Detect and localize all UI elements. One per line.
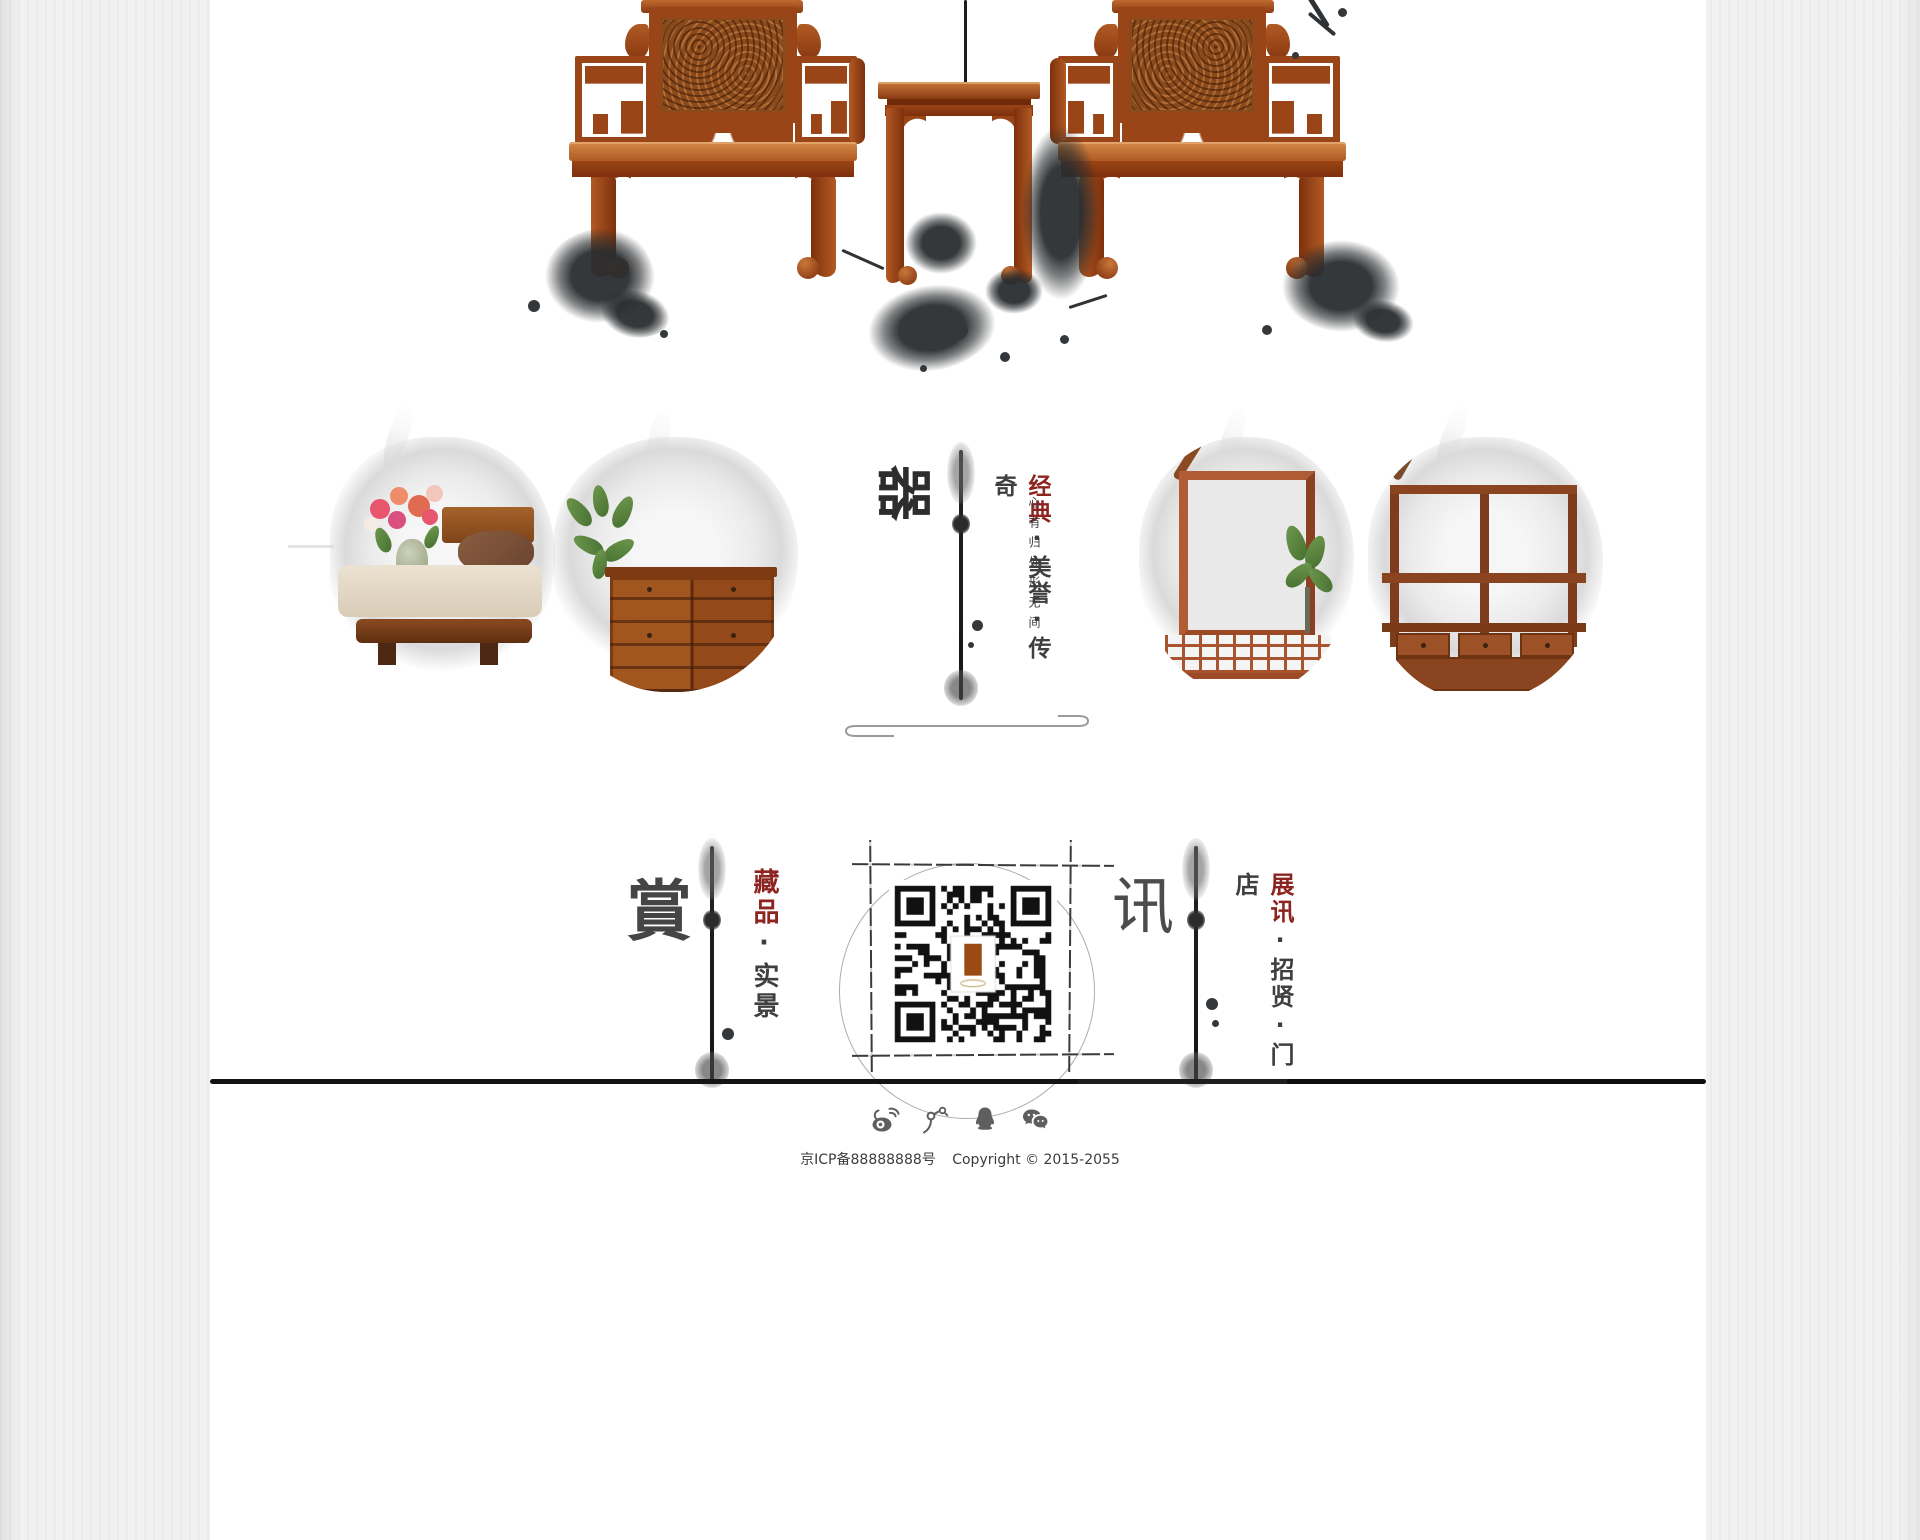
drawer-knob — [1483, 643, 1488, 648]
ink-dot — [1292, 52, 1299, 59]
table-top — [878, 82, 1040, 99]
bed-surface — [338, 565, 542, 617]
shang-slogan: 藏品·实景 — [746, 868, 783, 1028]
icp-number: 京ICP备88888888号 — [800, 1152, 936, 1168]
leaf — [372, 525, 395, 554]
ink-dot — [1338, 8, 1347, 17]
ink-knot — [703, 910, 721, 930]
chair-arm-panel — [795, 56, 857, 144]
qr-frame-line — [1068, 840, 1072, 1072]
ink-splat — [905, 212, 977, 274]
ink-brush-line — [1194, 846, 1198, 1082]
copyright-line: 京ICP备88888888号 Copyright © 2015-2055 — [0, 1149, 1920, 1169]
gallery-item-bedroom[interactable] — [330, 437, 555, 692]
divider-line — [838, 708, 1096, 742]
ink-brush-line — [710, 846, 714, 1082]
gallery-item-shelf[interactable] — [1368, 437, 1603, 700]
bed-leg — [480, 643, 498, 665]
shelf-rail — [1382, 573, 1586, 583]
ink-dot — [1206, 998, 1218, 1010]
wechat-qr-canvas — [889, 880, 1057, 1048]
ink-brush-line — [959, 450, 963, 700]
social-links — [0, 1104, 1920, 1136]
flower — [388, 511, 406, 529]
ink-splat — [863, 277, 1002, 380]
qr-frame-line — [852, 863, 1114, 867]
tencent-weibo-icon[interactable] — [919, 1104, 951, 1136]
ink-dot — [660, 330, 668, 338]
ink-dot — [1060, 335, 1069, 344]
chair-arm-panel — [575, 56, 653, 144]
shelf-base-cabinet — [1396, 657, 1574, 691]
brand-slogan: 经典·美誉·传奇 — [986, 474, 1054, 674]
chair-scroll-ornament — [625, 24, 649, 58]
plant-trunk — [1305, 587, 1310, 633]
table-apron — [885, 105, 1033, 116]
wechat-icon[interactable] — [1019, 1104, 1051, 1136]
footer-brush-line — [210, 1079, 1706, 1084]
gallery-row: 器 经典·美誉·传奇 心有归处形无间 — [0, 420, 1920, 720]
drawer-knob — [647, 587, 652, 592]
weibo-icon[interactable] — [869, 1104, 901, 1136]
ink-dot — [1262, 325, 1272, 335]
drawer-knob — [731, 633, 736, 638]
ink-dot — [1212, 1020, 1219, 1027]
ink-dot — [972, 620, 983, 631]
leaf — [562, 494, 596, 530]
hanging-string — [964, 0, 967, 86]
ink-knot — [1187, 910, 1205, 930]
slogan-primary: 展讯 — [1266, 872, 1294, 926]
flower — [370, 499, 390, 519]
chair-arm-post — [849, 58, 865, 144]
chair-seat — [569, 142, 857, 161]
chair-apron — [572, 161, 854, 177]
ink-dot — [946, 320, 968, 340]
slogan-primary: 藏品 — [749, 868, 779, 928]
hero-furniture-scene — [0, 0, 1920, 380]
qq-icon[interactable] — [969, 1104, 1001, 1136]
shang-section[interactable]: 賞 藏品·实景 — [600, 830, 800, 1085]
ink-fuzz — [698, 838, 726, 900]
gallery-item-cabinet[interactable] — [553, 437, 798, 692]
ink-fuzz — [947, 442, 975, 504]
drawer-grid — [610, 577, 774, 692]
chair-carved-panel — [1132, 20, 1252, 110]
chair-scroll-ornament — [1094, 24, 1118, 58]
shelf-counter — [1382, 623, 1586, 632]
drawer-knob — [1545, 643, 1550, 648]
ink-knot — [952, 514, 970, 534]
flower — [390, 487, 408, 505]
leaf — [608, 493, 637, 531]
qr-block — [840, 825, 1120, 1085]
qr-frame-line — [852, 1053, 1114, 1057]
ink-dot — [722, 1028, 734, 1040]
table-leg — [886, 108, 904, 283]
brand-mark: 器 — [872, 462, 934, 524]
bed-rail — [356, 619, 532, 643]
leaf — [590, 484, 610, 518]
gallery-item-frame[interactable] — [1139, 437, 1354, 695]
bed-leg — [378, 643, 396, 665]
drawer-knob — [731, 587, 736, 592]
drawer-knob — [647, 633, 652, 638]
wood-pole — [1392, 437, 1430, 481]
xun-glyph: 讯 — [1112, 856, 1174, 946]
ink-blob — [944, 670, 978, 706]
ink-dot — [920, 365, 927, 372]
copyright-text: Copyright © 2015-2055 — [952, 1152, 1120, 1168]
qr-frame-line — [869, 840, 873, 1072]
chair-arm-panel — [1262, 56, 1340, 144]
shang-glyph: 賞 — [626, 858, 692, 954]
chair-foot — [1096, 257, 1118, 279]
chair-carved-panel — [663, 20, 783, 110]
chair-fretwork — [653, 122, 793, 142]
table-foot — [898, 266, 917, 285]
chair-seat — [1058, 142, 1346, 161]
chair-foot — [797, 257, 819, 279]
slogan-rest: ·实景 — [749, 928, 779, 1022]
ink-dot — [968, 642, 974, 648]
chair-scroll-ornament — [797, 24, 821, 58]
cabinet-top — [605, 567, 777, 577]
ink-streak — [1069, 294, 1108, 309]
ink-fuzz — [1182, 838, 1210, 900]
drawer-knob — [1421, 643, 1426, 648]
chair-fretwork — [1122, 122, 1262, 142]
page-background: 器 经典·美誉·传奇 心有归处形无间 賞 藏品·实景 讯 — [0, 0, 1920, 1540]
brand-sub-slogan: 心有归处形无间 — [1026, 496, 1043, 656]
flower — [422, 509, 438, 525]
chair-apron — [1061, 161, 1343, 177]
shelf-rail — [1390, 485, 1577, 494]
xun-slogan: 展讯·招贤·门店 — [1228, 872, 1298, 1077]
chair-scroll-ornament — [1266, 24, 1290, 58]
ink-splat — [985, 268, 1043, 314]
lattice-panel — [1165, 635, 1331, 679]
ink-dot — [1000, 352, 1010, 362]
ink-dot — [528, 300, 540, 312]
flower — [426, 485, 443, 502]
photo-artifact-line — [288, 545, 334, 548]
